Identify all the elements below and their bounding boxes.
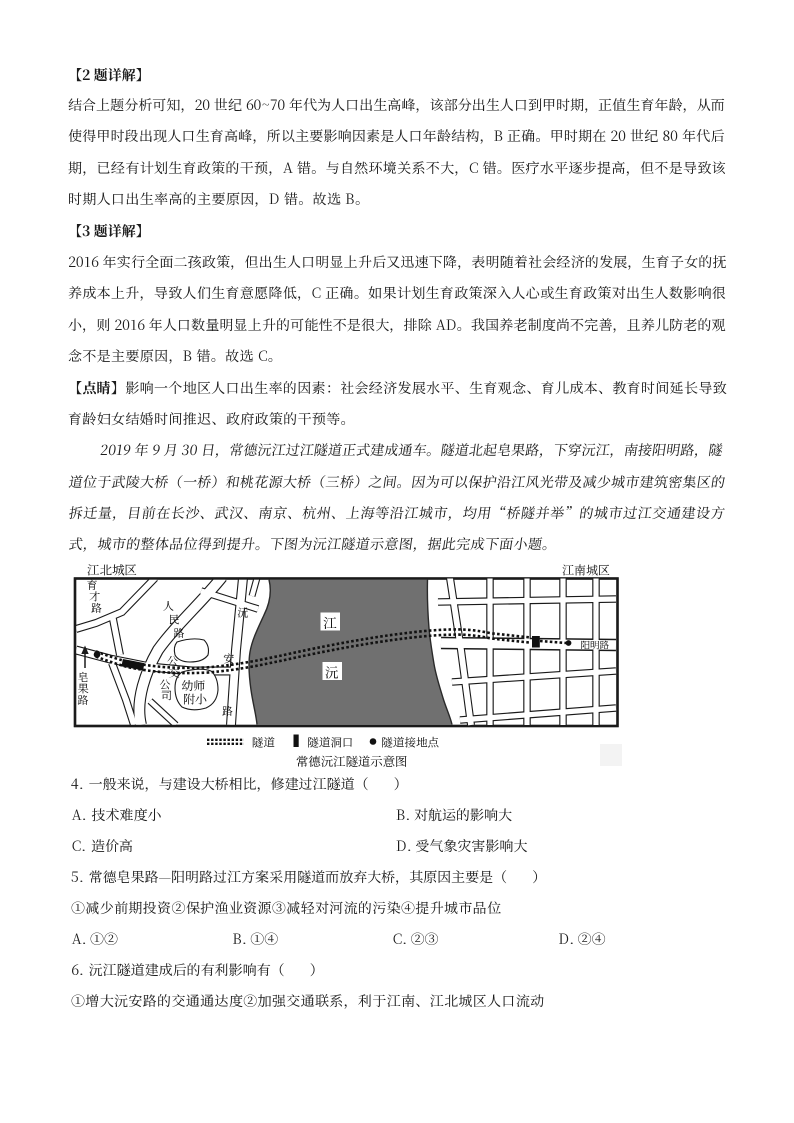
- svg-text:常德沅江隧道示意图: 常德沅江隧道示意图: [296, 752, 408, 770]
- svg-text:路: 路: [222, 703, 233, 719]
- svg-text:路: 路: [78, 692, 89, 708]
- svg-text:江: 江: [323, 612, 337, 632]
- svg-text:路: 路: [174, 625, 185, 641]
- svg-text:沅: 沅: [238, 605, 249, 621]
- svg-text:隧道洞口: 隧道洞口: [308, 735, 354, 751]
- svg-text:安: 安: [224, 651, 235, 667]
- svg-text:江南城区: 江南城区: [562, 562, 610, 579]
- svg-text:隧道接地点: 隧道接地点: [382, 735, 440, 751]
- svg-text:阳明路: 阳明路: [581, 638, 610, 652]
- svg-text:沅: 沅: [325, 662, 339, 682]
- svg-text:江北城区: 江北城区: [87, 561, 137, 579]
- svg-text:隧道: 隧道: [252, 735, 275, 751]
- svg-text:附小: 附小: [183, 691, 207, 708]
- svg-text:司: 司: [161, 688, 172, 704]
- svg-text:路: 路: [91, 600, 102, 616]
